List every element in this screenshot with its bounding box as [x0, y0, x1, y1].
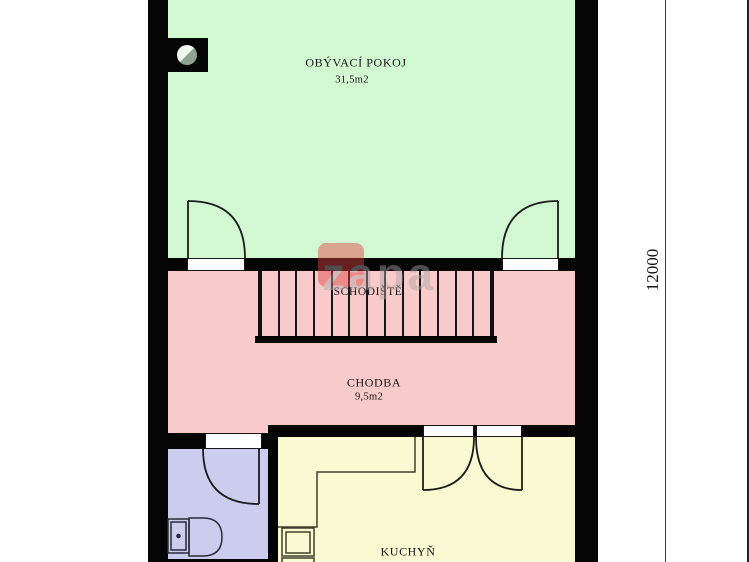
wall-right [575, 0, 598, 562]
label-kitchen: KUCHYŇ [381, 545, 436, 560]
label-living-room-area: 31,5m2 [335, 75, 369, 86]
wall-left [148, 0, 168, 562]
label-living-room: OBÝVACÍ POKOJ [305, 56, 406, 71]
room-kitchen [278, 437, 575, 562]
door-opening-kitchen-right [476, 425, 522, 437]
door-opening-living-left [187, 258, 245, 271]
watermark: zapa [310, 240, 520, 320]
dimension-line-right [665, 0, 666, 562]
wall-bathroom-kitchen [268, 437, 278, 562]
stair-tread [262, 271, 280, 336]
label-hallway-area: 9,5m2 [355, 392, 383, 403]
door-opening-bathroom [205, 433, 262, 449]
door-opening-kitchen-left [423, 425, 474, 437]
stair-tread [280, 271, 298, 336]
chimney-flue-icon [177, 45, 197, 65]
floor-plan: OBÝVACÍ POKOJ 31,5m2 SCHODIŠTĚ CHODBA 9,… [0, 0, 749, 562]
dimension-value-right: 12000 [643, 249, 663, 292]
staircase-bottom-edge [255, 336, 497, 343]
room-living [168, 0, 575, 258]
watermark-text: zapa [322, 244, 436, 304]
wall-hallway-kitchen [268, 425, 575, 437]
label-hallway: CHODBA [347, 376, 401, 391]
room-bathroom [168, 449, 268, 562]
